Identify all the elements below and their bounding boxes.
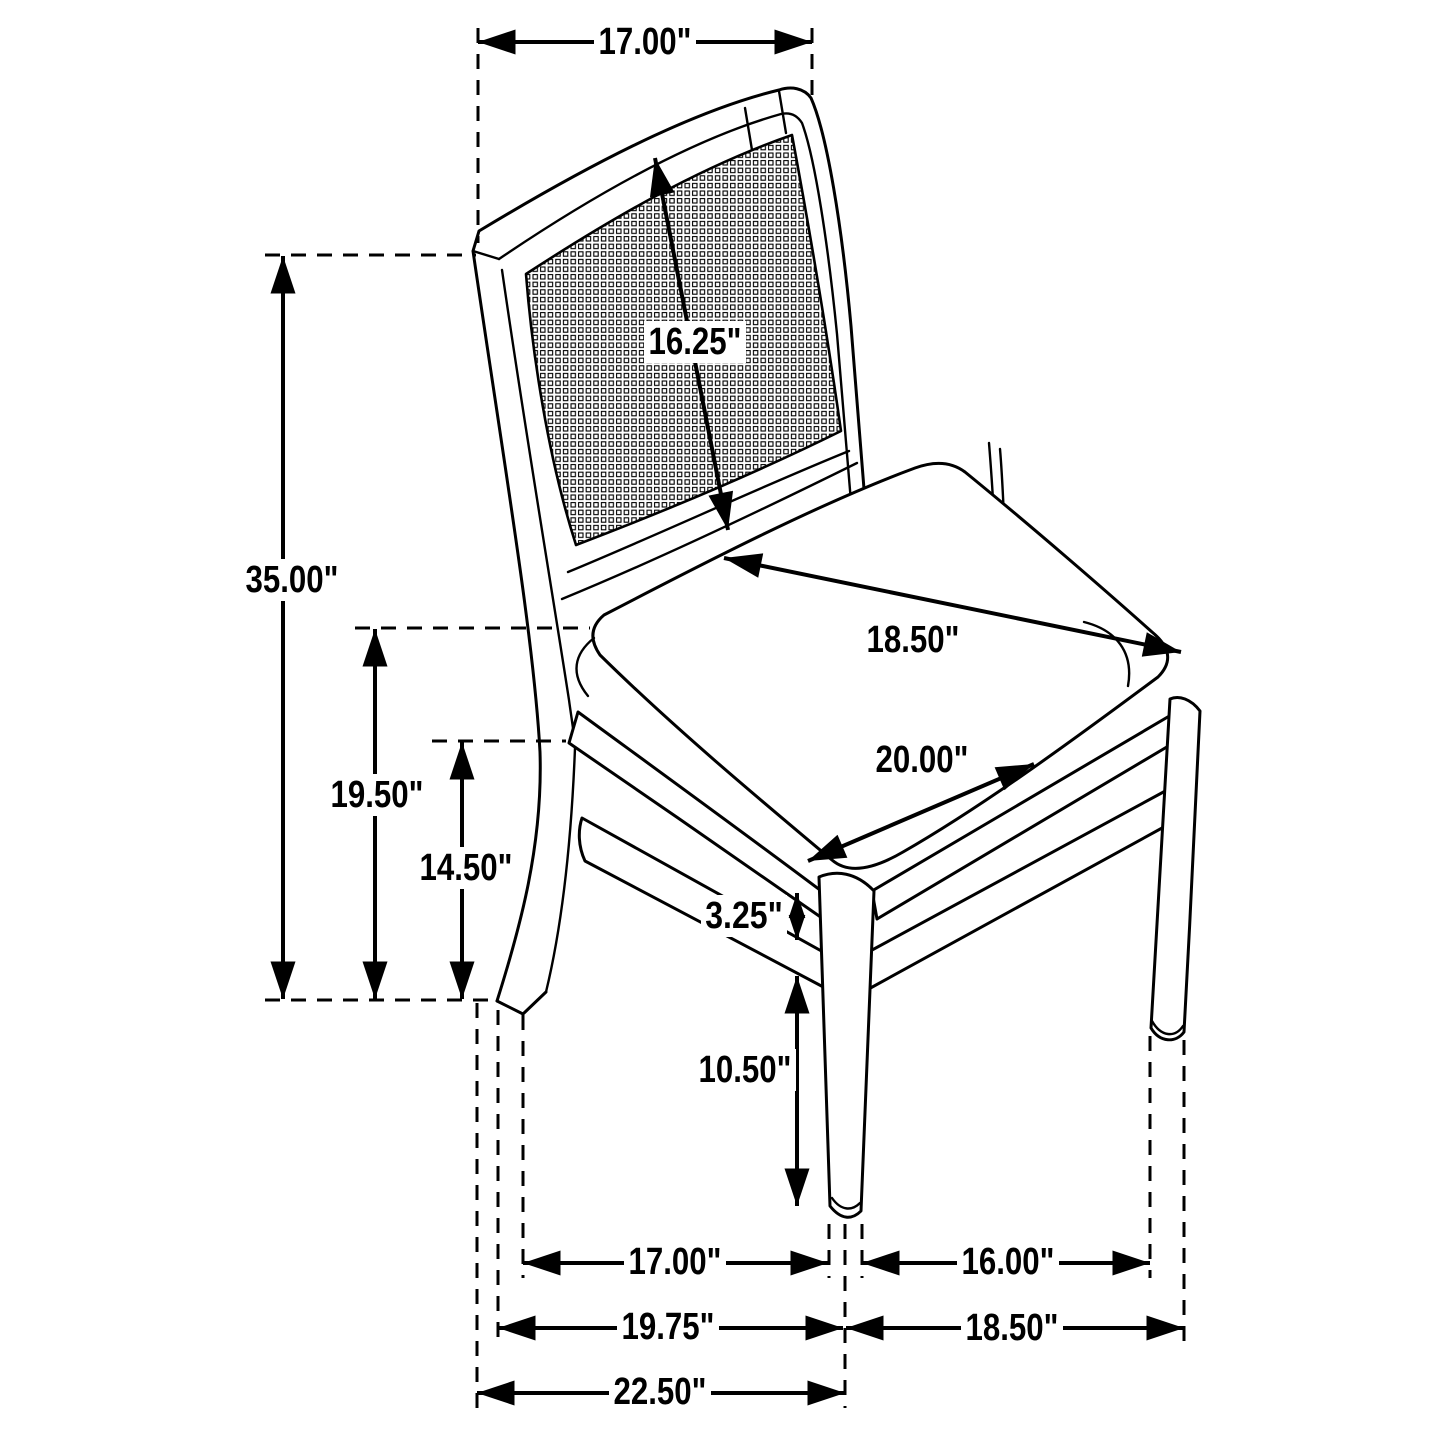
dimension-back_width_top: 17.00" [478, 21, 812, 63]
chair-dimension-diagram: 17.00"35.00"19.50"14.50"16.25"18.50"20.0… [0, 0, 1445, 1445]
chair-back-corner-facet-right-a [745, 108, 752, 150]
dimension-label-seat_depth: 18.50" [867, 619, 960, 661]
dimension-diagram-stage: 17.00"35.00"19.50"14.50"16.25"18.50"20.0… [0, 0, 1445, 1445]
dimension-label-seat_height: 19.50" [331, 774, 424, 816]
dimension-label-floor_span_front: 16.00" [962, 1241, 1055, 1283]
dimension-label-back_width_top: 17.00" [599, 21, 692, 63]
dimension-apron_to_stretcher_gap: 3.25" [701, 893, 797, 940]
chair-back-corner-facet-left [473, 251, 499, 259]
dimension-label-floor_depth_overall: 22.50" [614, 1371, 707, 1413]
dimension-label-back_panel_diagonal: 16.25" [649, 321, 742, 363]
dimension-floor_span_front: 16.00" [862, 1241, 1150, 1283]
dimension-stretcher_to_floor: 10.50" [694, 976, 797, 1206]
dimension-floor_depth_overall: 22.50" [477, 1371, 845, 1413]
chair-rear-left-leg-inner-edge [546, 748, 575, 992]
dimension-label-overall_height: 35.00" [246, 559, 339, 601]
dimension-overall_height: 35.00" [241, 256, 343, 999]
chair-rear-left-foot [497, 992, 546, 1014]
dimension-floor_depth_mid: 19.75" [498, 1306, 843, 1348]
dimension-floor_span_side: 17.00" [523, 1241, 828, 1283]
chair-back-corner-facet-right-b [779, 91, 786, 133]
dimension-apron_bottom_height: 14.50" [415, 742, 517, 999]
dimension-label-seat_width: 20.00" [876, 739, 969, 781]
chair-line-drawing [473, 88, 1200, 1217]
dimension-label-floor_depth_mid: 19.75" [622, 1306, 715, 1348]
dimension-label-floor_width_overall: 18.50" [966, 1307, 1059, 1349]
dimension-label-apron_to_stretcher_gap: 3.25" [705, 895, 783, 937]
dimension-floor_width_overall: 18.50" [846, 1307, 1184, 1349]
dimension-label-stretcher_to_floor: 10.50" [699, 1049, 792, 1091]
chair-cushion-crease-left [577, 638, 594, 696]
dimension-label-floor_span_side: 17.00" [629, 1241, 722, 1283]
dimension-seat_height: 19.50" [326, 629, 428, 999]
chair-front-leg [819, 873, 874, 1217]
dimension-label-apron_bottom_height: 14.50" [420, 847, 513, 889]
